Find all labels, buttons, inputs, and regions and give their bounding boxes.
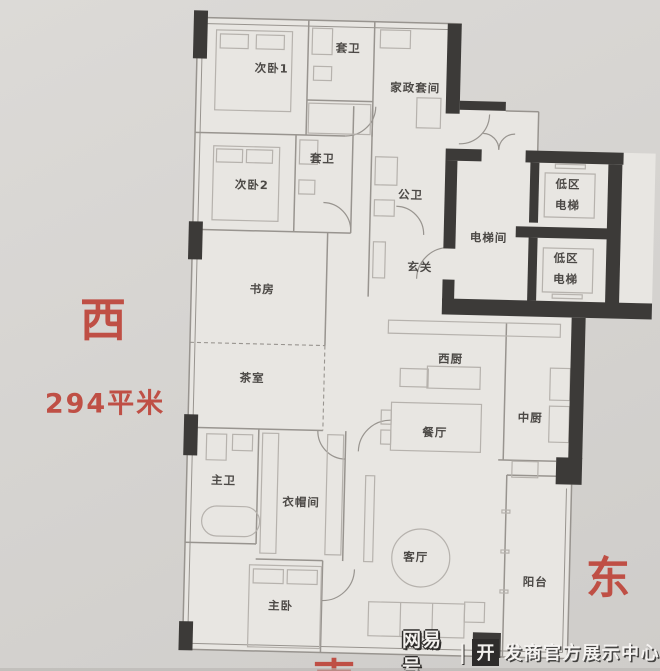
room-label-chinese-kitchen: 中厨 [518, 411, 543, 425]
watermark-badge: 开 [472, 639, 499, 666]
area-size-label: 294平米 [45, 382, 165, 421]
room-label-master-bath: 主卫 [211, 474, 236, 488]
room-label-walk-in-closet: 衣帽间 [282, 496, 320, 511]
watermark-divider: | [459, 640, 466, 664]
room-label-west-kitchen: 西厨 [438, 352, 463, 366]
room-label-guest-bath: 公卫 [398, 188, 423, 202]
room-label-foyer: 玄关 [407, 261, 432, 275]
room-label-living-room: 客厅 [403, 551, 428, 565]
room-label-tea-room: 茶室 [239, 372, 264, 386]
compass-east-label: 东 [586, 542, 630, 606]
room-label-ensuite-bath-top: 套卫 [336, 42, 361, 56]
watermark-brand-logo: 网易号 [402, 625, 453, 671]
floor-plan-photo: 次卧1 套卫 家政套间 次卧2 套卫 公卫 玄关 电梯间 低区电梯 低区电梯 书… [0, 0, 660, 671]
room-label-elevator-hall: 电梯间 [470, 231, 508, 246]
room-label-bedroom-2: 次卧2 [235, 178, 269, 193]
room-label-study: 书房 [250, 283, 275, 297]
room-label-dining-room: 餐厅 [422, 426, 447, 440]
room-label-ensuite-bath-mid: 套卫 [310, 152, 335, 166]
room-label-master-bedroom: 主卧 [268, 599, 293, 613]
room-label-low-zone-elevator-upper: 低区电梯 [554, 174, 581, 217]
compass-west-label: 西 [80, 284, 126, 350]
room-label-bedroom-1: 次卧1 [254, 62, 288, 77]
watermark-bar: 网易号 | 开 发商官方展示中心 [402, 637, 660, 667]
room-label-low-zone-elevator-lower: 低区电梯 [552, 248, 579, 291]
watermark-text: 发商官方展示中心 [504, 639, 660, 665]
room-label-housekeeping-suite: 家政套间 [390, 81, 440, 96]
room-label-balcony: 阳台 [523, 576, 548, 590]
